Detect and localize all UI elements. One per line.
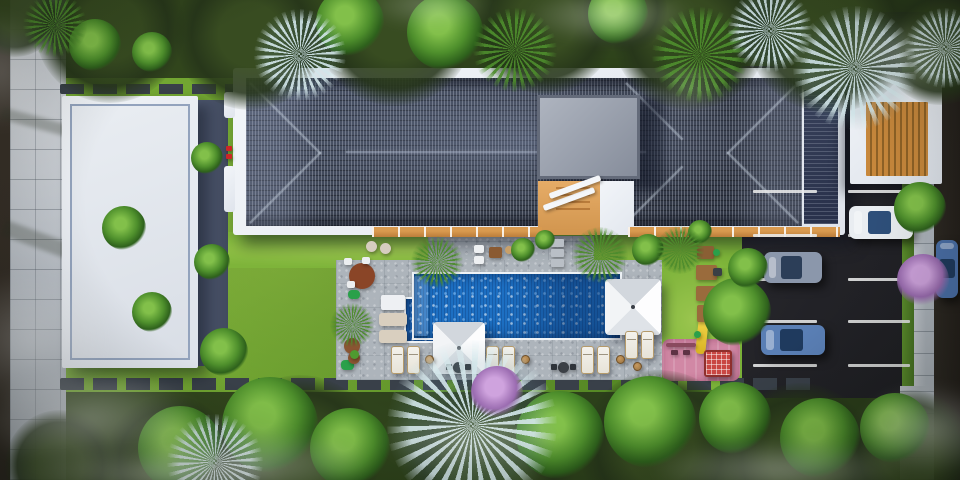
ground-floor-terraces (372, 227, 542, 237)
tower-shadow (640, 98, 664, 190)
swimming-pool (412, 272, 622, 340)
tree-canopy-band-bottom (0, 392, 960, 480)
stair-tower-roof (537, 95, 640, 179)
aerial-site-render (0, 0, 960, 480)
pergola-wood-slats (866, 102, 928, 176)
ground-floor-terraces (628, 227, 840, 237)
left-building-side-wall (196, 100, 228, 366)
main-building-tiled-roof (246, 78, 802, 226)
carport-pergola (850, 72, 942, 184)
roof-right-section (804, 90, 838, 224)
left-building-roof (62, 96, 198, 368)
driveway (845, 12, 935, 70)
walk-path-bottom (900, 386, 934, 480)
main-building-notch (224, 92, 235, 118)
stone-walkway-top (60, 84, 236, 94)
pool-deep-end (414, 274, 620, 338)
main-building-notch (224, 166, 235, 212)
left-building-roof-panel (70, 104, 190, 360)
playground-climber (704, 350, 732, 377)
